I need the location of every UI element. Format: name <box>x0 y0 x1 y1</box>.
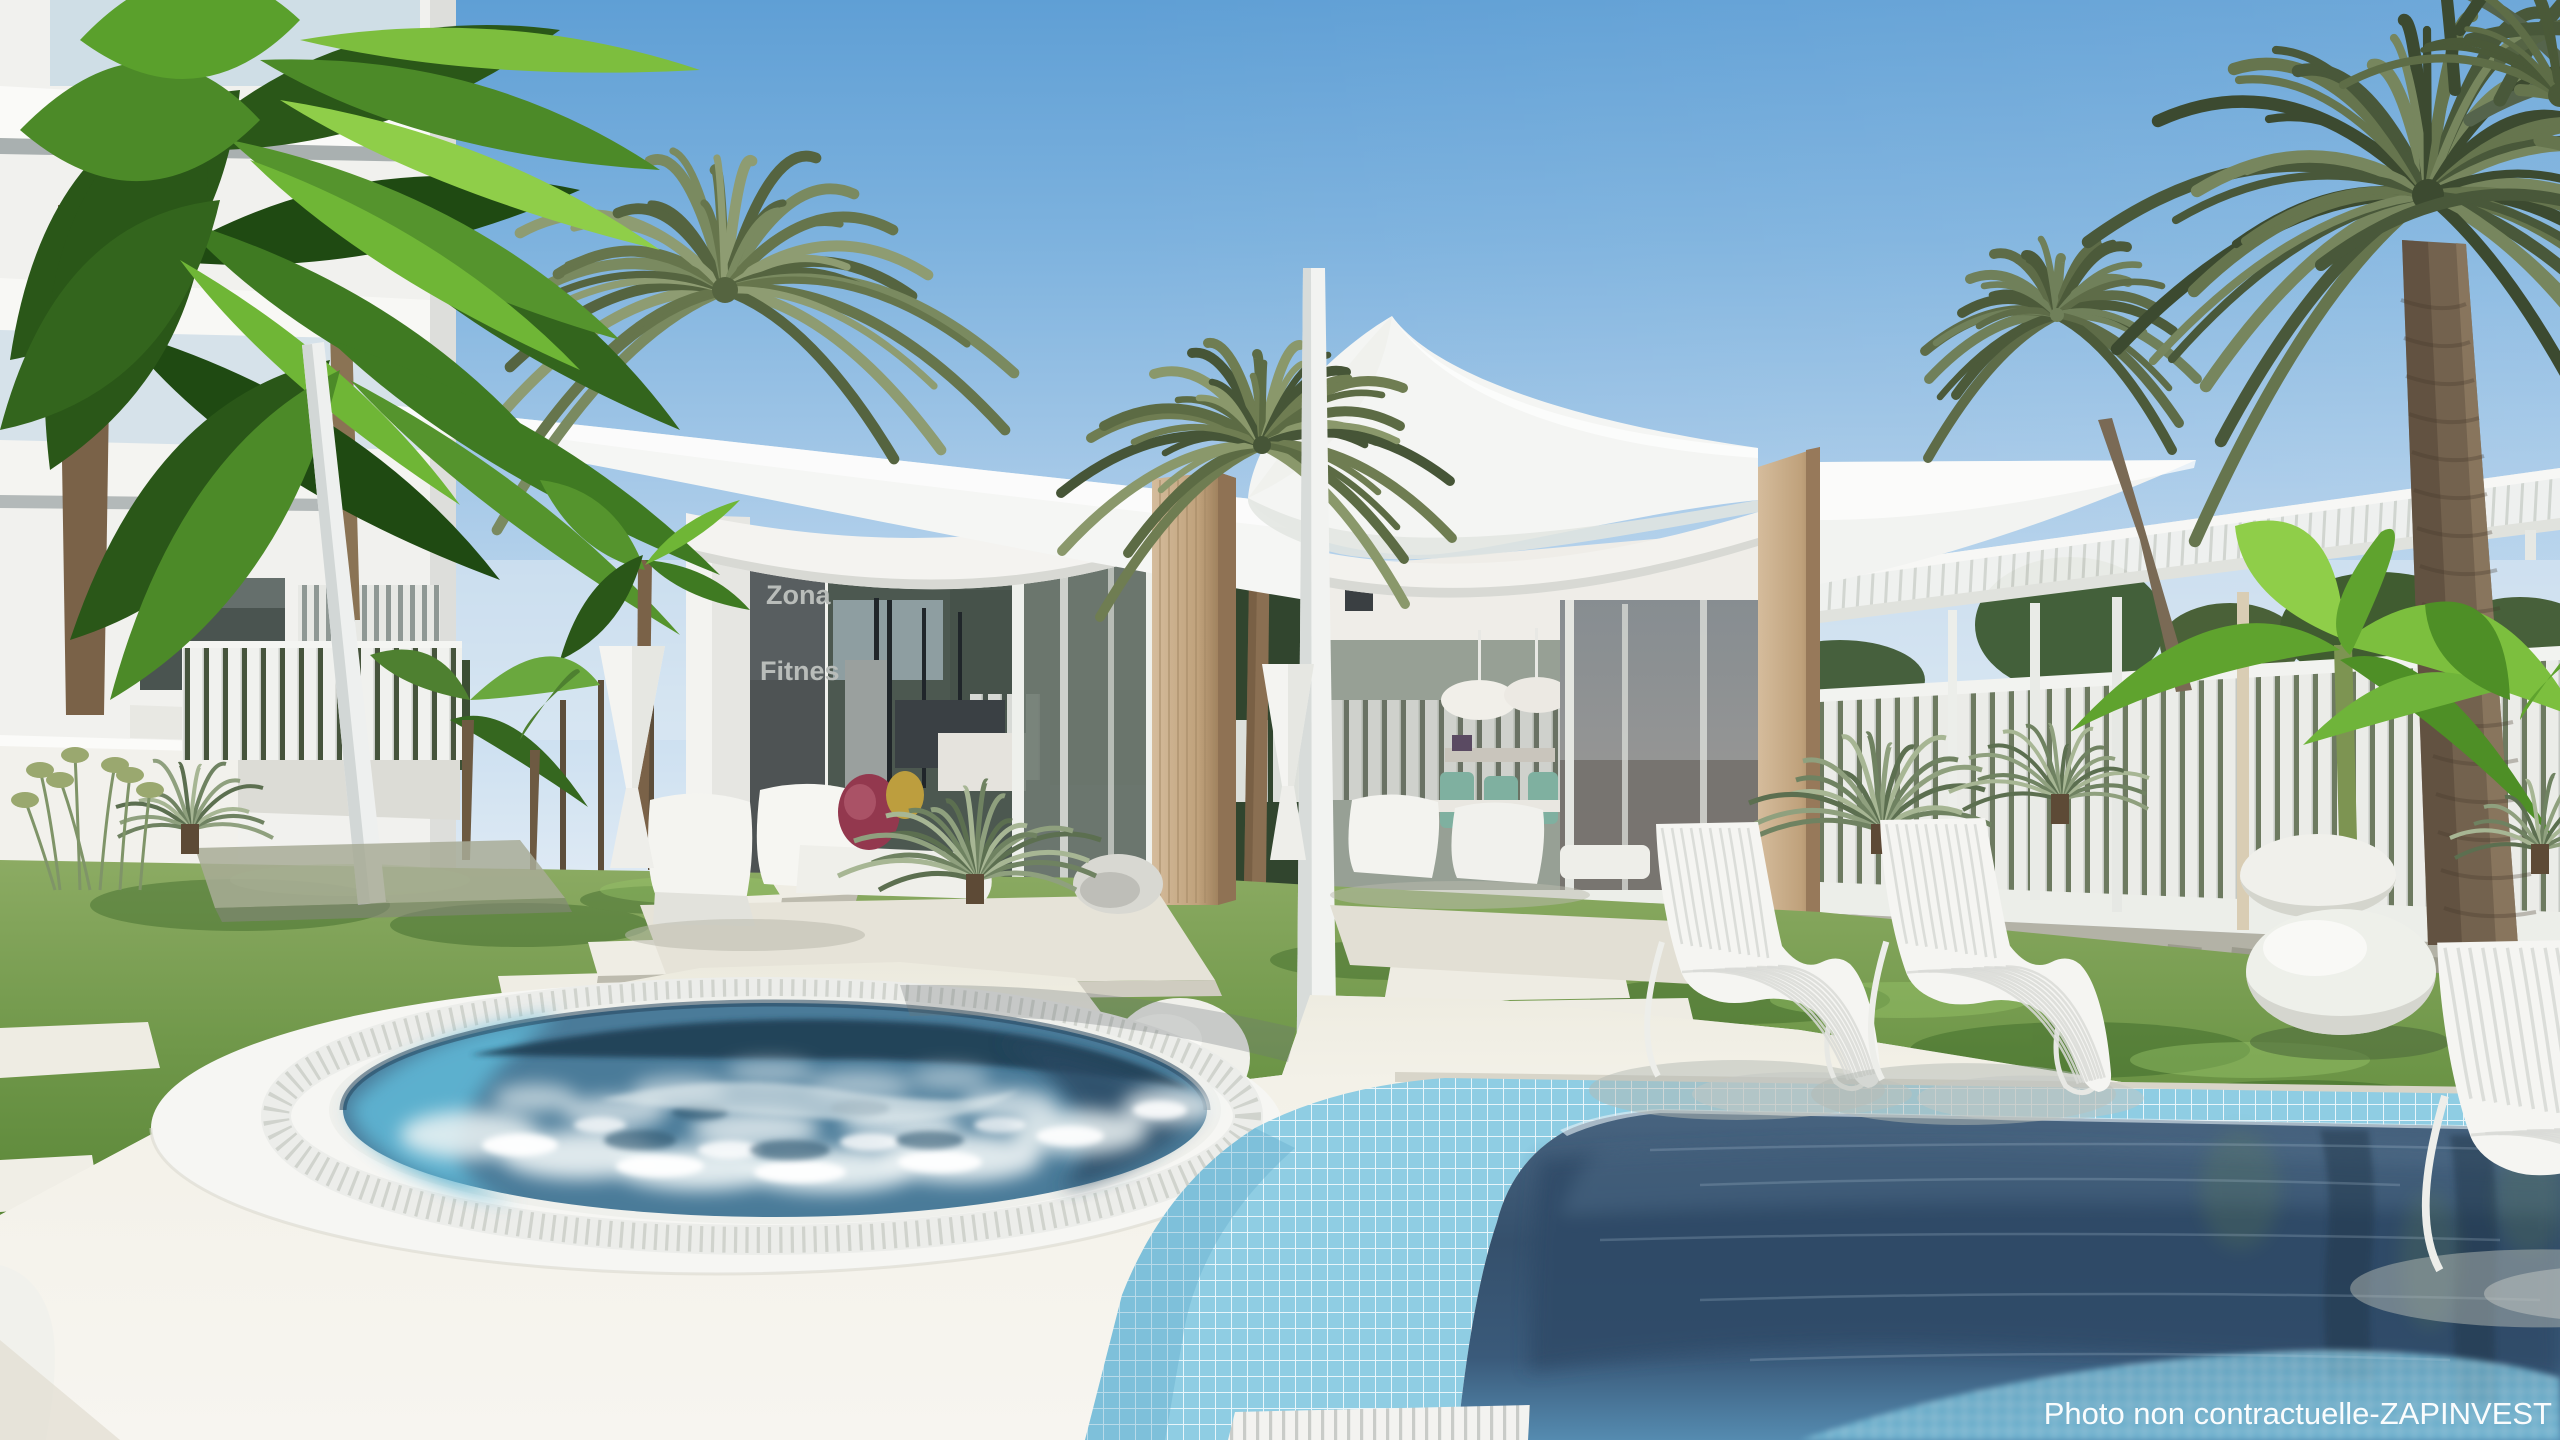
svg-text:Zona: Zona <box>766 580 831 610</box>
svg-text:Fitnes: Fitnes <box>760 656 840 686</box>
svg-text:Photo non contractuelle-ZAPINV: Photo non contractuelle-ZAPINVEST <box>2044 1396 2552 1431</box>
